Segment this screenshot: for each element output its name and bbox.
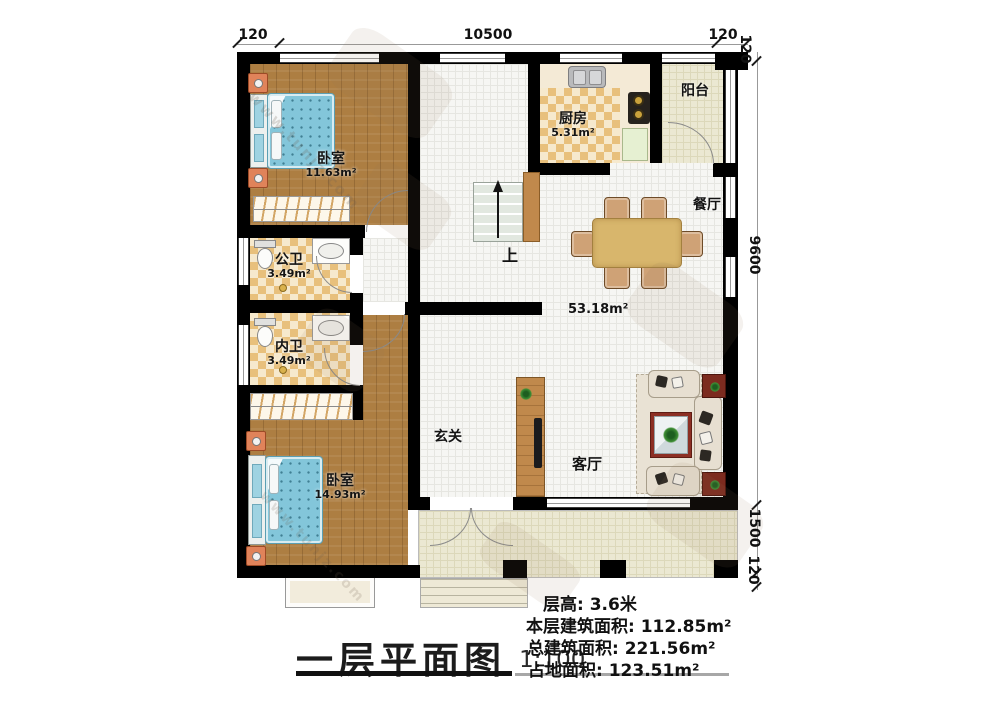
window — [725, 70, 736, 163]
toilet-tank — [254, 318, 276, 326]
side-table — [702, 374, 726, 398]
room-area: 14.93m² — [302, 489, 378, 501]
window — [238, 325, 249, 385]
dim-top-corner: 120 — [737, 34, 753, 64]
room-name: 餐厅 — [684, 198, 730, 213]
wall — [350, 302, 363, 315]
room-name: 玄关 — [428, 430, 468, 445]
open-area-label: 53.18m² — [568, 303, 628, 317]
dining-table — [592, 218, 682, 268]
wardrobe — [253, 196, 350, 222]
wall — [405, 302, 542, 315]
wall — [528, 163, 610, 175]
sofa-cushion — [655, 375, 668, 388]
plant — [663, 427, 679, 443]
window — [662, 53, 719, 63]
room-label-bedroom-top: 卧室 11.63m² — [296, 152, 366, 179]
room-area: 3.49m² — [262, 355, 316, 367]
toilet-tank — [254, 240, 276, 248]
wall — [237, 225, 365, 238]
plant — [520, 388, 532, 400]
wardrobe — [250, 393, 353, 420]
stair-up-arrow-icon — [493, 180, 503, 192]
room-label-living: 客厅 — [564, 456, 610, 473]
wall — [408, 315, 420, 497]
nightstand — [246, 431, 266, 451]
room-label-foyer: 玄关 — [428, 430, 468, 445]
wall — [350, 238, 363, 255]
sofa-cushion — [671, 376, 684, 389]
room-area: 53.18m² — [568, 303, 628, 317]
wall — [713, 163, 735, 177]
tv — [534, 418, 542, 468]
dim-top-span: 10500 — [460, 27, 516, 43]
floor-bath-corridor — [363, 238, 408, 302]
refrigerator — [622, 128, 648, 161]
stair-direction-line — [497, 192, 499, 238]
room-label-bath-public: 公卫 3.49m² — [262, 253, 316, 280]
dim-top-right: 120 — [708, 27, 738, 43]
floor-plan-canvas: 上 — [0, 0, 1000, 706]
nightstand — [246, 546, 266, 566]
window — [725, 257, 736, 297]
room-label-balcony: 阳台 — [672, 84, 718, 99]
title-underline — [296, 671, 512, 676]
room-name: 客厅 — [564, 456, 610, 473]
porch-column — [600, 560, 626, 578]
room-label-bath-private: 内卫 3.49m² — [262, 340, 316, 367]
wall — [650, 52, 662, 163]
room-label-kitchen: 厨房 5.31m² — [540, 112, 606, 139]
room-area: 3.49m² — [262, 268, 316, 280]
kitchen-sink — [568, 66, 606, 88]
room-area: 11.63m² — [296, 167, 366, 179]
dim-right-bottom: 120 — [745, 555, 761, 585]
stove-cooktop — [628, 92, 650, 124]
wall — [408, 497, 430, 510]
dim-right-porch: 1500 — [746, 506, 762, 550]
wall — [237, 300, 363, 313]
nightstand — [248, 168, 268, 188]
dimension-line-top — [237, 44, 748, 45]
sofa-cushion — [699, 449, 711, 461]
room-label-bedroom-bottom: 卧室 14.93m² — [302, 474, 378, 501]
wall — [513, 497, 547, 510]
dimension-tick — [274, 38, 285, 49]
window — [560, 53, 622, 63]
room-area: 5.31m² — [540, 127, 606, 139]
dining-chair — [679, 231, 703, 257]
dim-right-span: 9600 — [746, 233, 762, 277]
bed-pillow — [269, 464, 279, 494]
info-footprint-area: 占地面积: 123.51m² — [528, 656, 699, 681]
stair-up-label: 上 — [502, 242, 518, 266]
room-label-dining: 餐厅 — [684, 198, 730, 213]
window — [440, 53, 505, 63]
floor-drain — [279, 284, 287, 292]
wall — [528, 52, 540, 175]
room-name: 阳台 — [672, 84, 718, 99]
stair-side-wall — [523, 172, 540, 242]
dim-top-left: 120 — [238, 27, 268, 43]
